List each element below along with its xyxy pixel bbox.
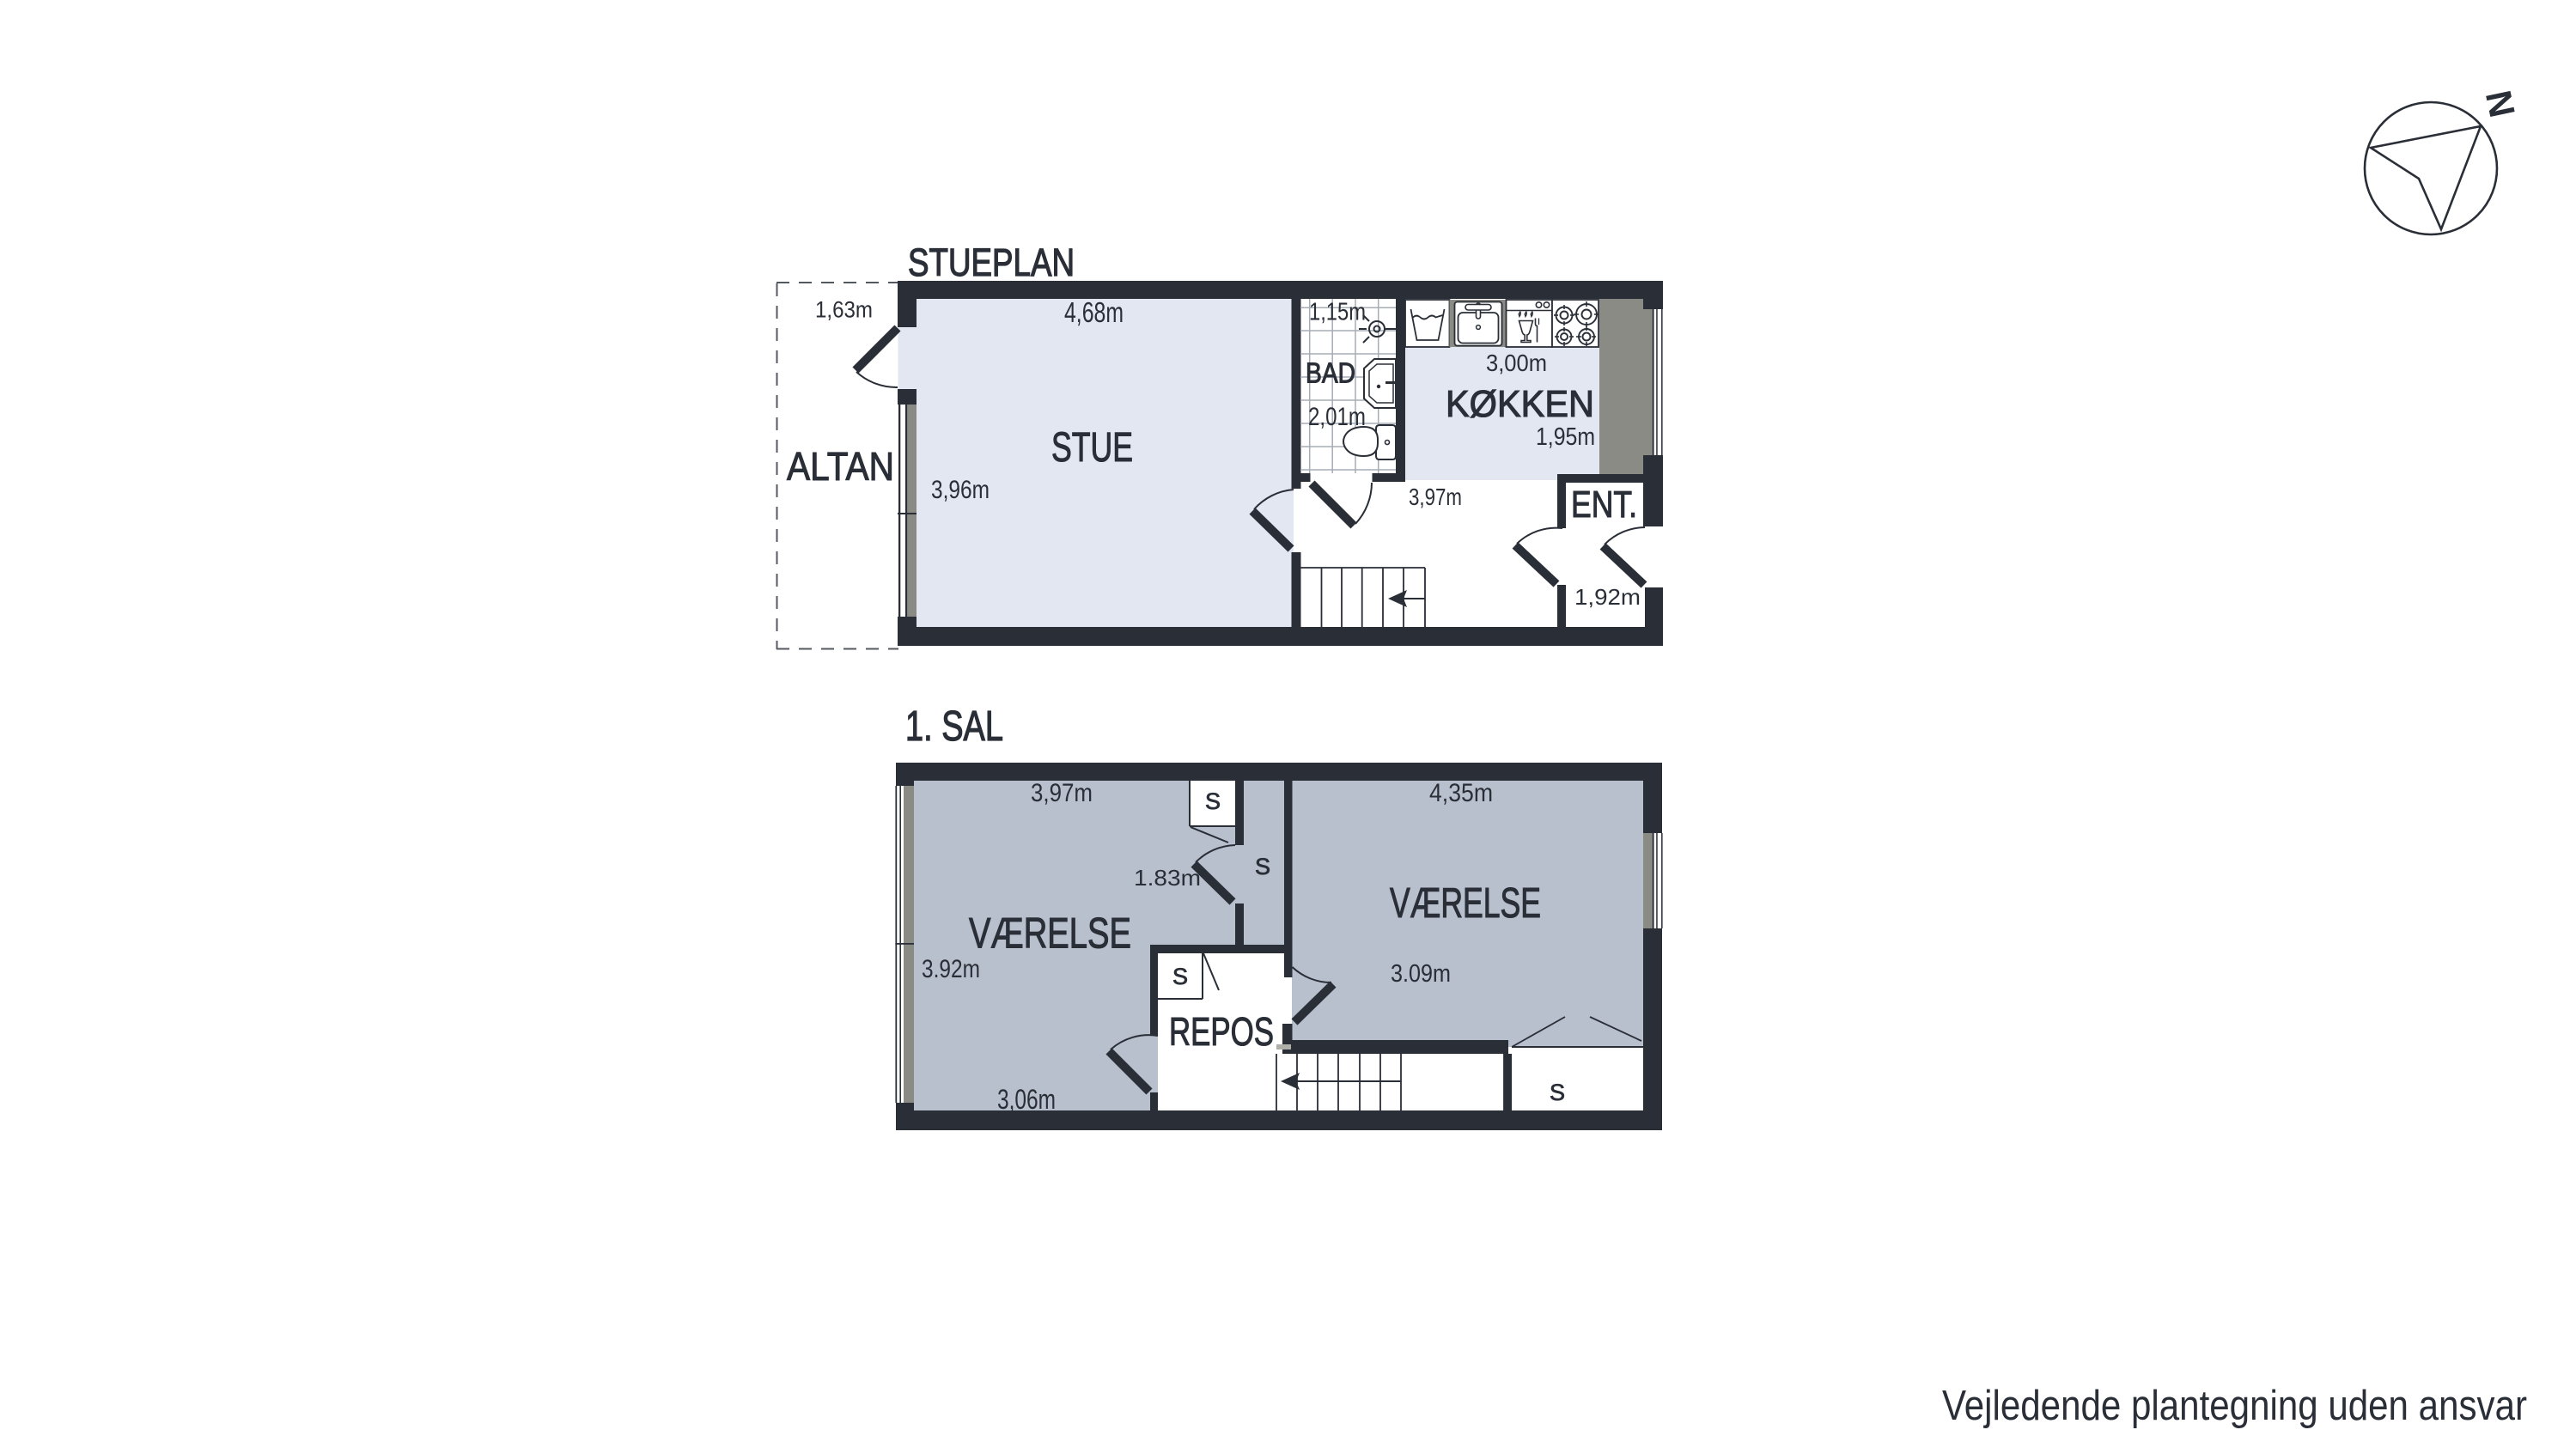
svg-text:S: S	[1172, 964, 1188, 989]
svg-text:STUE: STUE	[1051, 425, 1133, 471]
svg-text:3,06m: 3,06m	[997, 1084, 1056, 1115]
svg-text:VÆRELSE: VÆRELSE	[1390, 880, 1541, 927]
svg-text:BAD: BAD	[1306, 357, 1355, 389]
svg-text:REPOS: REPOS	[1169, 1009, 1274, 1054]
svg-text:4,68m: 4,68m	[1064, 296, 1124, 328]
svg-text:3,96m: 3,96m	[931, 476, 990, 504]
svg-text:Vejledende plantegning uden an: Vejledende plantegning uden ansvar	[1942, 1383, 2527, 1429]
svg-text:3.09m: 3.09m	[1391, 960, 1451, 988]
svg-text:ENT.: ENT.	[1571, 484, 1637, 526]
svg-text:1,63m: 1,63m	[815, 297, 873, 323]
svg-text:KØKKEN: KØKKEN	[1446, 383, 1594, 425]
svg-text:3.92m: 3.92m	[922, 955, 980, 983]
svg-text:VÆRELSE: VÆRELSE	[969, 910, 1131, 958]
svg-text:2,01m: 2,01m	[1308, 403, 1366, 431]
svg-text:1. SAL: 1. SAL	[905, 703, 1003, 750]
svg-text:STUEPLAN: STUEPLAN	[908, 240, 1075, 284]
svg-text:S: S	[1205, 788, 1221, 814]
svg-text:3,00m: 3,00m	[1486, 350, 1547, 376]
svg-text:ALTAN: ALTAN	[787, 444, 894, 489]
svg-text:1,15m: 1,15m	[1309, 299, 1366, 326]
svg-text:4,35m: 4,35m	[1429, 779, 1493, 807]
svg-text:3,97m: 3,97m	[1031, 779, 1093, 807]
svg-text:1,95m: 1,95m	[1536, 423, 1595, 451]
svg-text:3,97m: 3,97m	[1409, 484, 1462, 510]
svg-text:1,92m: 1,92m	[1574, 584, 1641, 610]
svg-text:S: S	[1550, 1080, 1565, 1105]
svg-text:S: S	[1255, 854, 1270, 879]
svg-text:1.83m: 1.83m	[1134, 865, 1201, 891]
